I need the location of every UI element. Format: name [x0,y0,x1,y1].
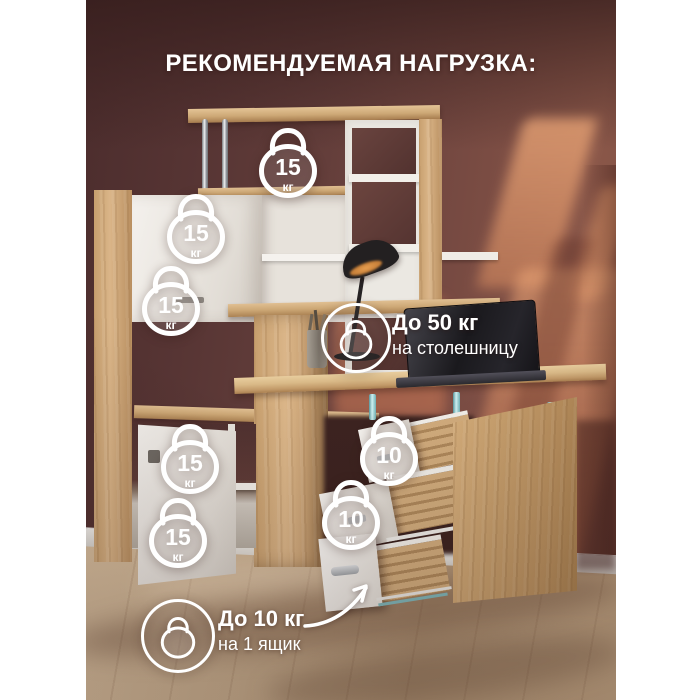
badge-unit: кг [282,181,293,193]
callout-value: До 50 кг [392,310,518,336]
load-badge-lower-door: 15кг [146,492,210,570]
badge-value: 15 [158,294,184,317]
shelf-board [262,254,345,261]
load-badge-lower-shelf: 15кг [158,418,222,496]
infographic-canvas: РЕКОМЕНДУЕМАЯ НАГРУЗКА: 15кг 15кг 15кг 1… [0,0,700,700]
badge-value: 15 [275,156,301,179]
pedestal-wall-shadow [575,420,616,570]
callout-target: на 1 ящик [218,634,304,655]
load-badge-upper-door-2: 15кг [139,260,203,338]
badge-value: 15 [183,222,209,245]
shelf-left-upright [94,190,132,562]
load-badge-middle-drawer: 10кг [319,474,383,552]
load-badge-upper-door-1: 15кг [164,188,228,266]
shelf-board [442,252,498,260]
room-photo: РЕКОМЕНДУЕМАЯ НАГРУЗКА: 15кг 15кг 15кг 1… [86,0,616,700]
badge-unit: кг [165,319,176,331]
drawer-pedestal-panel [453,397,577,603]
curved-arrow-icon [302,578,376,632]
badge-unit: кг [383,469,394,481]
badge-value: 10 [376,444,402,467]
badge-unit: кг [190,247,201,259]
load-title: РЕКОМЕНДУЕМАЯ НАГРУЗКА: [86,50,616,78]
drawer-callout-circle [141,599,215,673]
tabletop-callout: До 50 кг на столешницу [392,310,518,359]
badge-value: 10 [338,508,364,531]
callout-value: До 10 кг [218,606,304,632]
badge-unit: кг [184,477,195,489]
load-badge-top-shelf: 15кг [256,122,320,200]
badge-value: 15 [177,452,203,475]
kettlebell-in-circle-icon [338,316,374,360]
badge-value: 15 [165,526,191,549]
kettlebell-in-circle-icon [159,613,197,659]
chrome-pole [202,119,208,193]
badge-unit: кг [345,533,356,545]
tabletop-callout-circle [321,303,391,373]
callout-target: на столешницу [392,338,518,359]
badge-unit: кг [172,551,183,563]
shelf-board [349,174,421,182]
tower-cubby [352,128,416,174]
tower-cubby [352,182,416,244]
drawer-callout: До 10 кг на 1 ящик [218,606,304,655]
chrome-pole [222,119,228,193]
